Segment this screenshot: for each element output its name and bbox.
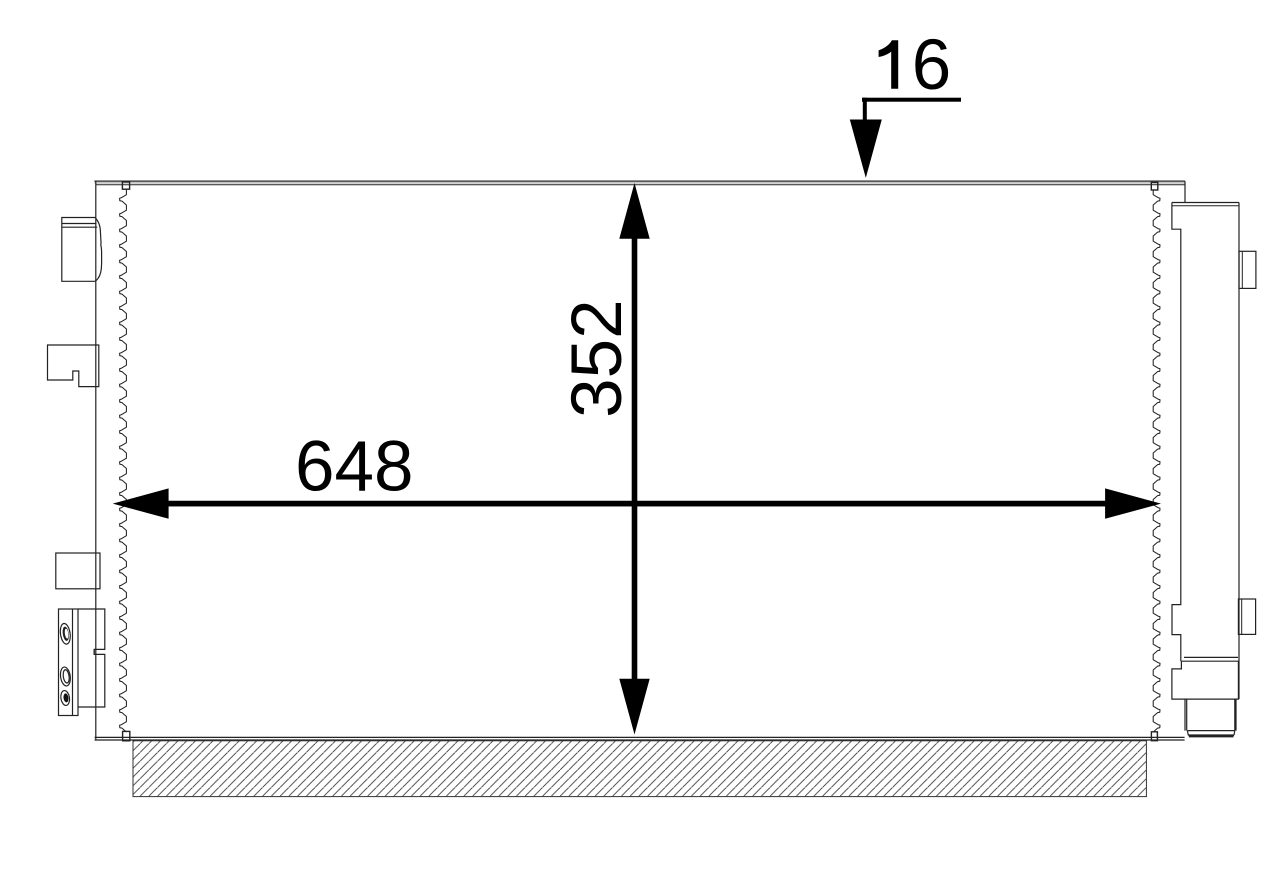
svg-text:352: 352: [558, 299, 637, 417]
svg-text:6: 6: [912, 26, 952, 105]
svg-text:648: 648: [295, 428, 413, 507]
